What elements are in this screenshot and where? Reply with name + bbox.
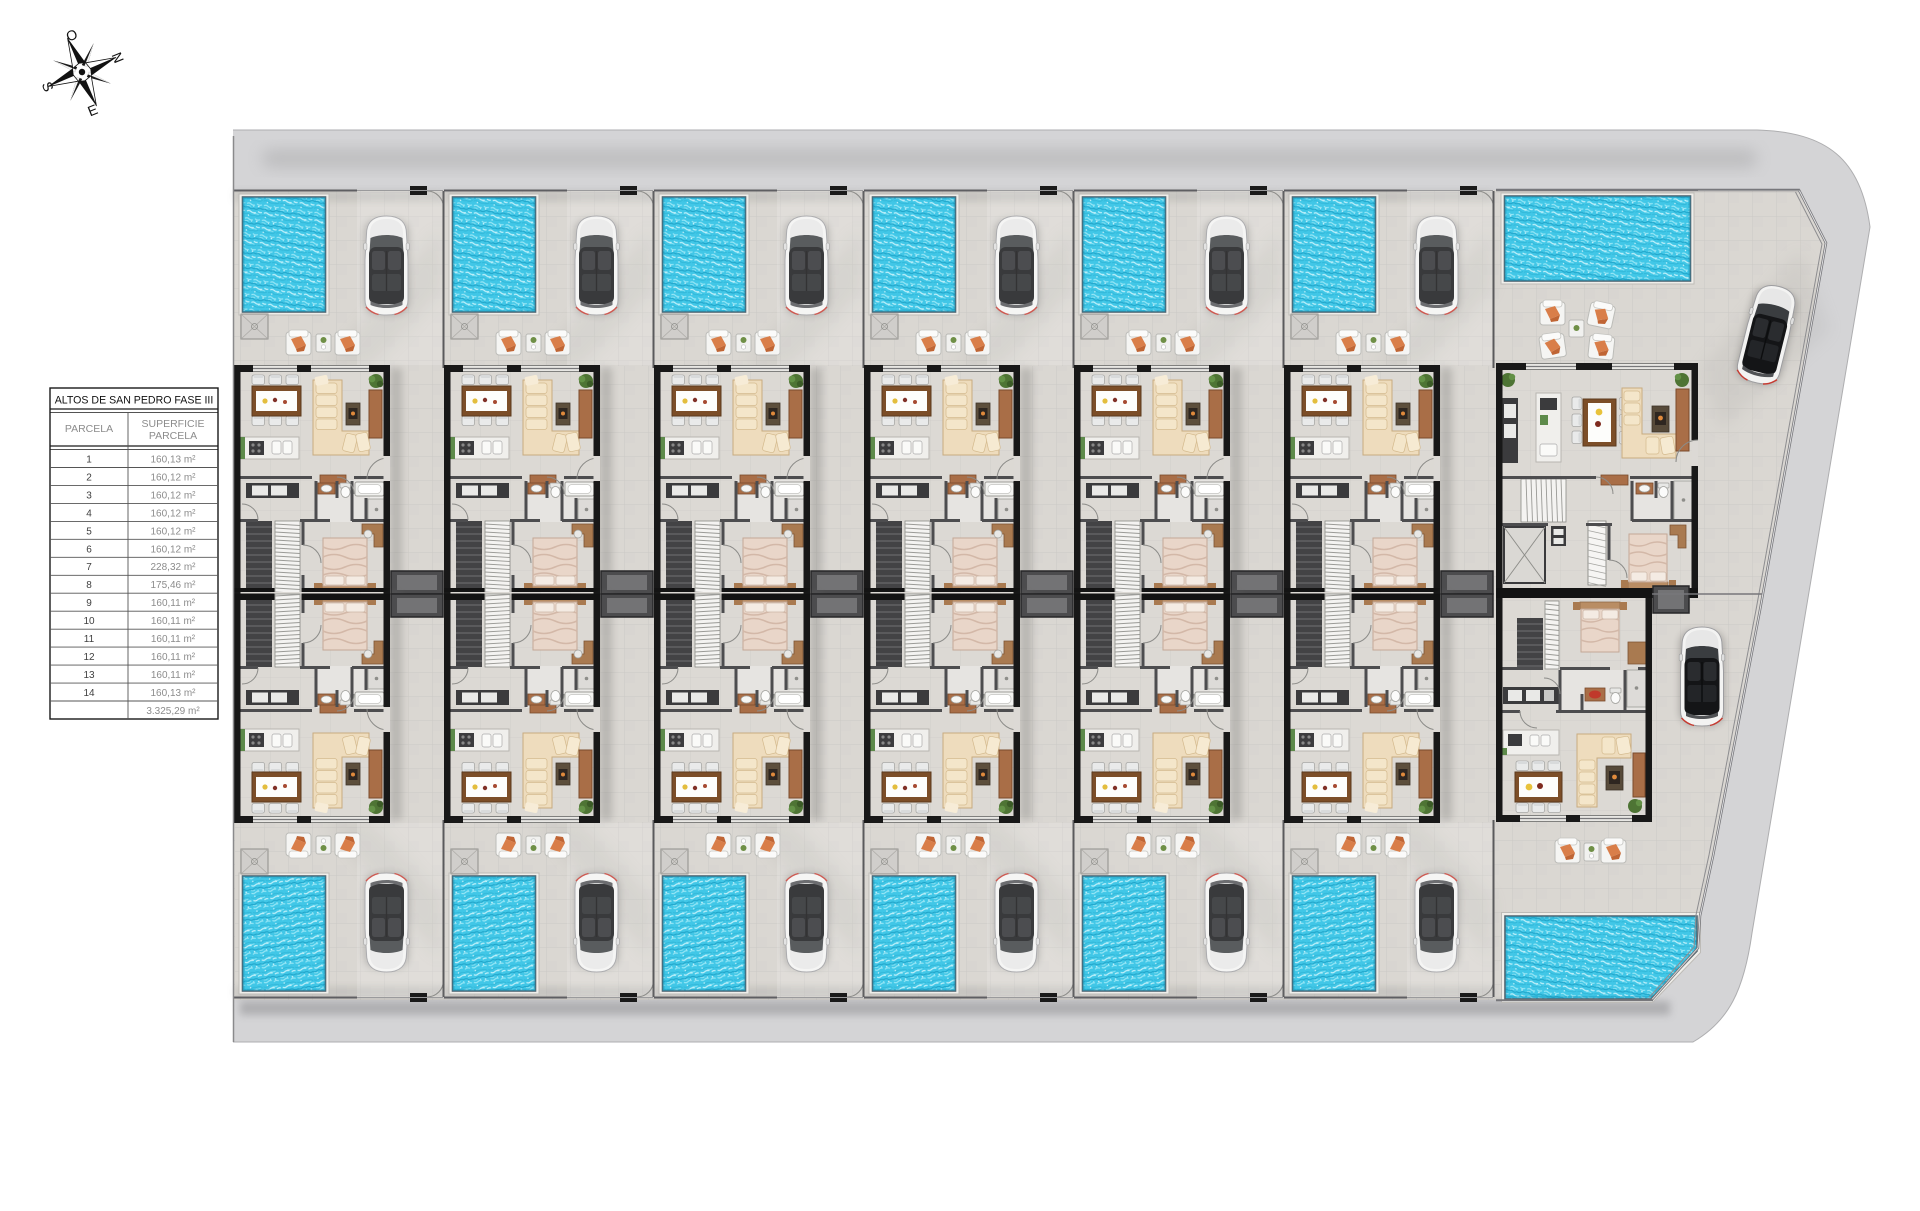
svg-text:1: 1 (86, 454, 92, 465)
svg-text:4: 4 (86, 508, 92, 519)
svg-text:ALTOS DE SAN PEDRO FASE III: ALTOS DE SAN PEDRO FASE III (55, 395, 214, 407)
svg-text:160,11 m²: 160,11 m² (151, 652, 196, 663)
svg-text:13: 13 (83, 670, 95, 681)
svg-text:160,12 m²: 160,12 m² (150, 526, 196, 537)
svg-text:160,11 m²: 160,11 m² (151, 616, 196, 627)
svg-text:160,13 m²: 160,13 m² (150, 454, 196, 465)
svg-text:PARCELA: PARCELA (149, 430, 197, 442)
svg-text:160,12 m²: 160,12 m² (150, 508, 196, 519)
svg-text:160,11 m²: 160,11 m² (151, 670, 196, 681)
svg-text:160,12 m²: 160,12 m² (150, 472, 196, 483)
svg-text:S: S (39, 79, 57, 94)
svg-text:160,13 m²: 160,13 m² (150, 688, 196, 699)
svg-text:160,12 m²: 160,12 m² (150, 544, 196, 555)
svg-text:O: O (64, 26, 80, 45)
svg-text:10: 10 (83, 616, 95, 627)
svg-text:SUPERFICIE: SUPERFICIE (141, 418, 204, 430)
svg-text:3: 3 (86, 490, 92, 501)
svg-text:160,12 m²: 160,12 m² (150, 490, 196, 501)
svg-text:160,11 m²: 160,11 m² (151, 598, 196, 609)
svg-text:14: 14 (83, 688, 95, 699)
svg-text:228,32 m²: 228,32 m² (150, 562, 196, 573)
svg-text:7: 7 (86, 562, 92, 573)
svg-text:6: 6 (86, 544, 92, 555)
svg-text:PARCELA: PARCELA (65, 423, 113, 435)
svg-text:N: N (109, 50, 128, 65)
svg-text:3.325,29 m²: 3.325,29 m² (146, 706, 200, 717)
svg-text:11: 11 (84, 634, 95, 645)
svg-text:12: 12 (83, 652, 95, 663)
svg-text:E: E (85, 101, 100, 119)
svg-text:160,11 m²: 160,11 m² (151, 634, 196, 645)
svg-text:9: 9 (86, 598, 92, 609)
svg-text:8: 8 (86, 580, 92, 591)
svg-text:175,46 m²: 175,46 m² (150, 580, 196, 591)
svg-text:5: 5 (86, 526, 92, 537)
svg-text:2: 2 (86, 472, 92, 483)
